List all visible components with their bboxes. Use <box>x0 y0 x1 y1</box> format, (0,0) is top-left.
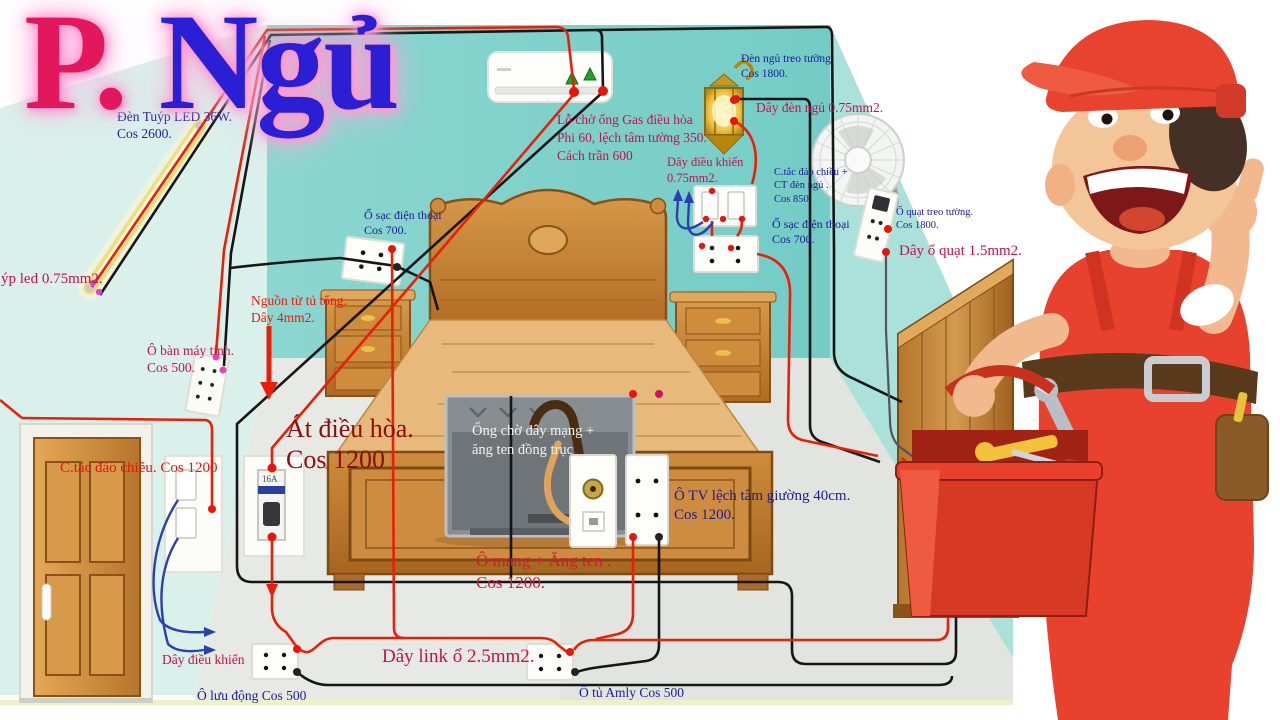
coax-network-plate <box>570 455 616 547</box>
label-lamp-wire: Dây đèn ngủ 0.75mm2. <box>756 99 883 116</box>
label-network-antenna-outlet: Ô mạng + Ăng ten .Cos 1200. <box>476 550 611 594</box>
label-control-wire-left: Dây điều khiển <box>162 651 244 668</box>
label-link-wire: Dây link ổ 2.5mm2. <box>382 645 535 669</box>
label-phone-outlet-right: Ổ sạc điện thoạiCos 700. <box>772 217 850 248</box>
label-wall-lamp: Đèn ngủ treo tườngCos 1800. <box>741 52 831 81</box>
label-door-switch: C.tắc đảo chiều. Cos 1200 <box>60 459 217 478</box>
door-handle <box>42 584 51 620</box>
repairman-hand-toolbox <box>953 375 995 417</box>
label-amly-outlet: Ổ tủ Amly Cos 500 <box>579 684 684 701</box>
outlet-mobile <box>252 644 298 679</box>
label-mobile-outlet: Ô lưu động Cos 500 <box>197 687 306 704</box>
label-power-source: Nguồn từ tủ tổng.Dây 4mm2. <box>251 292 347 327</box>
label-fan-outlet: Ổ quạt treo tường.Cos 1800. <box>896 206 973 233</box>
title-ngu: Ngủ <box>126 0 398 138</box>
title-p: P. <box>24 0 126 138</box>
headboard <box>430 190 666 332</box>
outlet-tv <box>626 455 668 545</box>
label-tv-outlet: Ô TV lệch tâm giường 40cm.Cos 1200. <box>674 487 850 525</box>
label-control-wire-right: Dây điều khiển0.75mm2. <box>667 154 743 186</box>
page-title: P. Ngủ <box>24 0 398 141</box>
label-switch-right: C.tắc đảo chiều +CT đèn ngủ .Cos 850. <box>774 166 848 206</box>
bedroom-wiring-diagram: 16A <box>0 0 1280 720</box>
label-computer-outlet: Ô bàn máy tính.Cos 500. <box>147 342 234 377</box>
outlet-phone-right <box>694 236 758 272</box>
outlet-phone-left <box>342 237 405 286</box>
label-led-wire: ýp led 0.75mm2. <box>1 270 103 289</box>
label-tv-conduit: Ống chờ dây mạng +ăng ten đồng trục <box>472 422 594 459</box>
ac-unit <box>488 52 612 102</box>
breaker-amp-label: 16A <box>262 474 278 484</box>
label-fan-wire: Dây ổ quạt 1.5mm2. <box>899 242 1022 261</box>
label-phone-outlet-left: Ổ sạc điện thoạiCos 700. <box>364 208 442 239</box>
label-ac-breaker: Át điều hòa.Cos 1200 <box>286 414 414 475</box>
